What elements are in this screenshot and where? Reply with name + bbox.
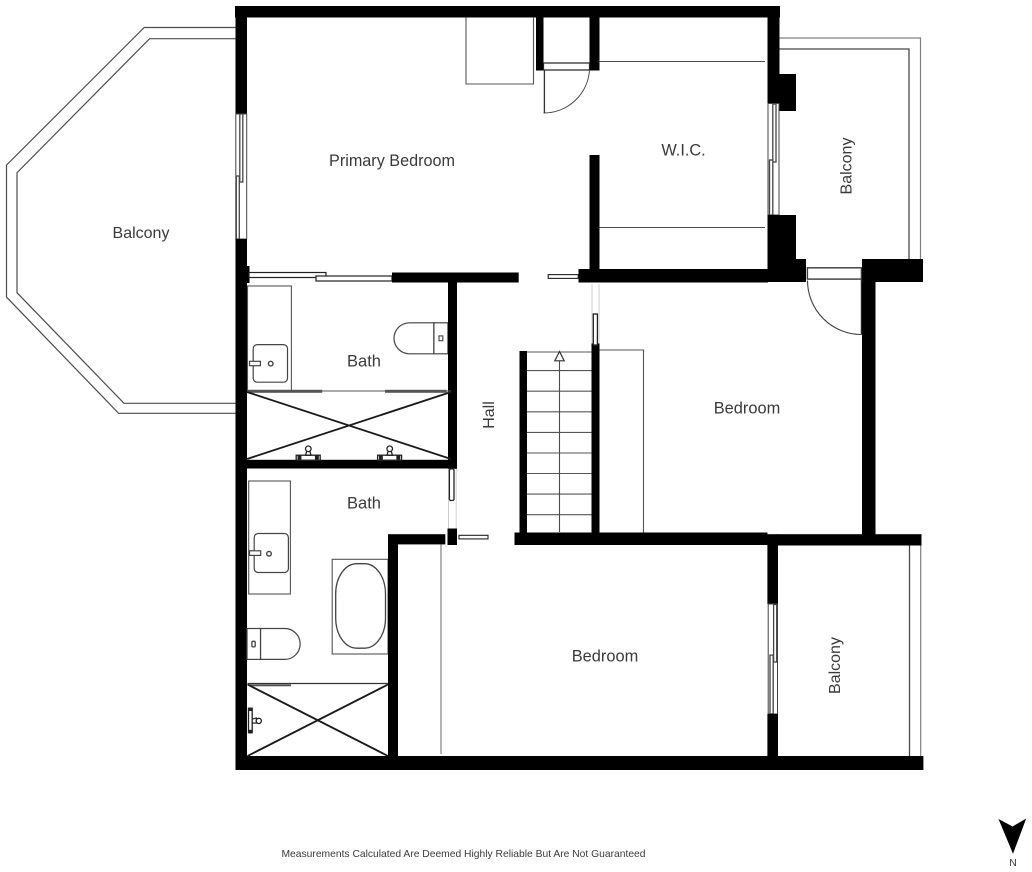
svg-text:Bath: Bath [347,495,381,513]
svg-text:Primary Bedroom: Primary Bedroom [329,152,455,170]
svg-text:Bedroom: Bedroom [714,400,781,418]
svg-text:Hall: Hall [481,401,498,429]
svg-text:Balcony: Balcony [113,225,170,242]
svg-text:Bedroom: Bedroom [572,648,639,666]
svg-text:Balcony: Balcony [839,138,856,195]
svg-text:Measurements Calculated Are De: Measurements Calculated Are Deemed Highl… [281,849,645,860]
svg-text:N: N [1009,857,1017,869]
svg-text:Balcony: Balcony [827,637,844,694]
svg-text:Bath: Bath [347,353,381,371]
svg-text:W.I.C.: W.I.C. [661,142,705,160]
